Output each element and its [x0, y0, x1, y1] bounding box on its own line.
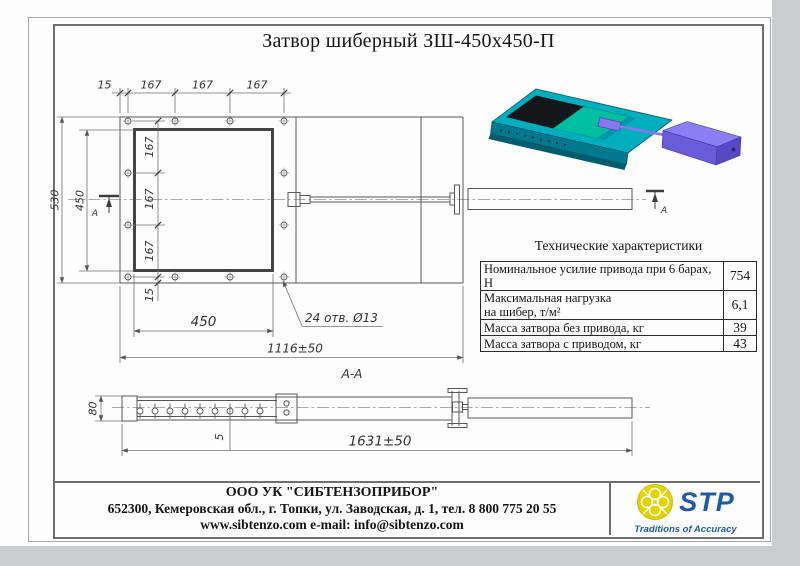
table-row: Масса затвора с приводом, кг 43 — [481, 336, 757, 352]
table-row: Номинальное усилие привода при 6 барах, … — [481, 262, 757, 291]
spec-table-title: Технические характеристики — [480, 238, 757, 254]
spec-value: 39 — [724, 320, 757, 336]
spec-value: 754 — [724, 262, 757, 291]
spec-label: Максимальная нагрузка на шибер, т/м² — [481, 291, 724, 320]
spec-label: Номинальное усилие привода при 6 барах, … — [481, 262, 724, 291]
stp-tagline: Traditions of Accuracy — [634, 524, 736, 535]
drawing-title: Затвор шиберный ЗШ-450х450-П — [53, 30, 764, 53]
stp-logo: STP Traditions of Accuracy — [611, 483, 760, 535]
table-row: Максимальная нагрузка на шибер, т/м² 6,1 — [481, 291, 757, 320]
company-contacts: www.sibtenzo.com e-mail: info@sibtenzo.c… — [200, 517, 463, 533]
company-address: 652300, Кемеровская обл., г. Топки, ул. … — [108, 501, 557, 517]
spec-label: Масса затвора без привода, кг — [481, 320, 724, 336]
spec-label: Масса затвора с приводом, кг — [481, 336, 724, 352]
spec-value: 43 — [724, 336, 757, 352]
spec-value: 6,1 — [724, 291, 757, 320]
drawing-sheet: Затвор шиберный ЗШ-450х450-П — [0, 0, 800, 566]
spec-table: Номинальное усилие привода при 6 барах, … — [480, 261, 757, 352]
table-row: Масса затвора без привода, кг 39 — [481, 320, 757, 336]
company-name: ООО УК "СИБТЕНЗОПРИБОР" — [226, 485, 439, 501]
stp-emblem-icon — [636, 483, 674, 521]
stp-logo-text: STP — [679, 489, 735, 516]
company-block: ООО УК "СИБТЕНЗОПРИБОР" 652300, Кемеровс… — [55, 482, 609, 535]
